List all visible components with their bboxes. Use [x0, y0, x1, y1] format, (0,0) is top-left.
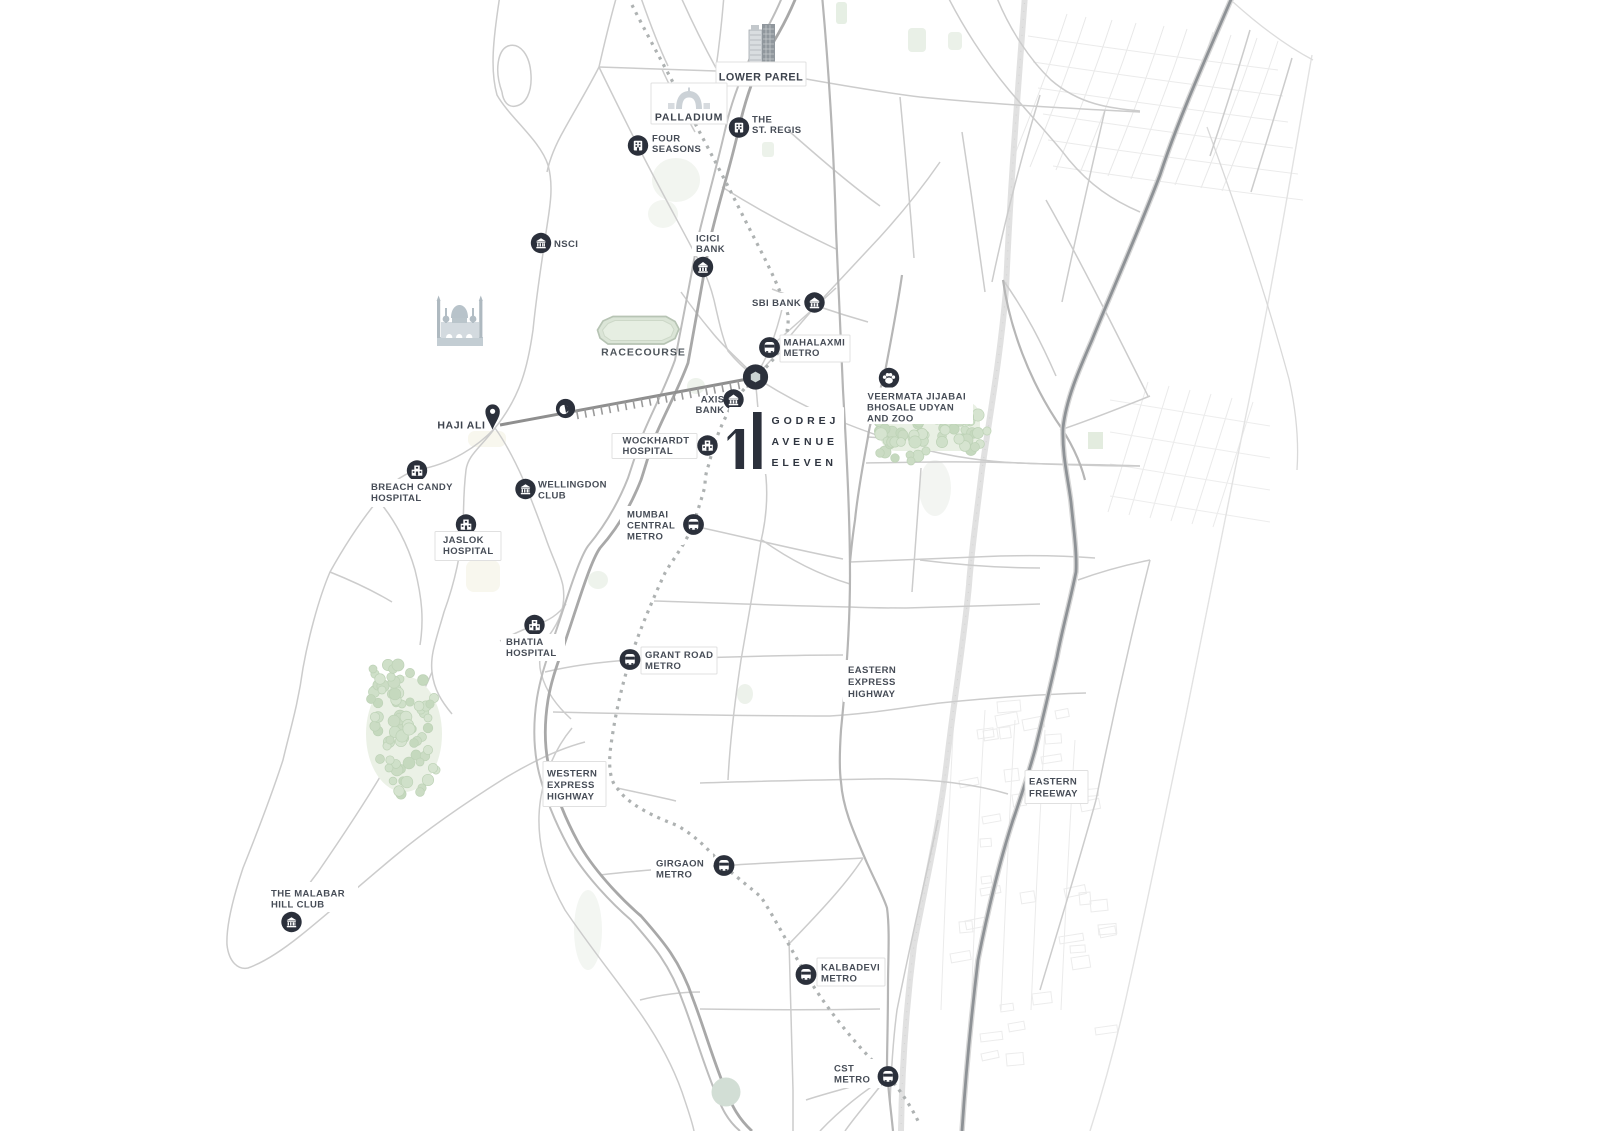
- svg-text:VEERMATA JIJABAI: VEERMATA JIJABAI: [868, 392, 967, 403]
- svg-text:SEASONS: SEASONS: [652, 144, 701, 155]
- svg-text:EXPRESS: EXPRESS: [848, 677, 896, 688]
- svg-text:CLUB: CLUB: [538, 491, 566, 502]
- svg-text:GODREJ: GODREJ: [772, 415, 840, 427]
- svg-text:METRO: METRO: [784, 348, 820, 359]
- svg-text:FOUR: FOUR: [652, 134, 681, 145]
- svg-text:HOSPITAL: HOSPITAL: [506, 648, 557, 659]
- svg-text:FREEWAY: FREEWAY: [1029, 789, 1078, 800]
- svg-text:EASTERN: EASTERN: [1029, 777, 1077, 788]
- svg-text:ST. REGIS: ST. REGIS: [752, 125, 802, 136]
- svg-text:GIRGAON: GIRGAON: [656, 859, 704, 870]
- svg-text:GRANT ROAD: GRANT ROAD: [645, 650, 713, 661]
- svg-text:HILL CLUB: HILL CLUB: [271, 900, 325, 911]
- svg-text:AVENUE: AVENUE: [772, 436, 838, 448]
- svg-text:AND ZOO: AND ZOO: [867, 414, 914, 425]
- svg-text:HIGHWAY: HIGHWAY: [848, 689, 896, 700]
- svg-text:EXPRESS: EXPRESS: [547, 780, 595, 791]
- svg-text:WESTERN: WESTERN: [547, 769, 597, 780]
- svg-text:CST: CST: [834, 1064, 854, 1075]
- svg-text:THE MALABAR: THE MALABAR: [271, 889, 345, 900]
- svg-text:METRO: METRO: [834, 1075, 870, 1086]
- svg-text:METRO: METRO: [645, 661, 681, 672]
- svg-text:EASTERN: EASTERN: [848, 665, 896, 676]
- svg-text:WELLINGDON: WELLINGDON: [538, 480, 607, 491]
- svg-text:PALLADIUM: PALLADIUM: [655, 112, 723, 124]
- svg-text:JASLOK: JASLOK: [443, 535, 484, 546]
- svg-text:HOSPITAL: HOSPITAL: [371, 493, 422, 504]
- svg-text:KALBADEVI: KALBADEVI: [821, 963, 880, 974]
- svg-text:LOWER PAREL: LOWER PAREL: [719, 72, 803, 84]
- svg-text:METRO: METRO: [821, 974, 857, 985]
- svg-text:BREACH CANDY: BREACH CANDY: [371, 482, 453, 493]
- svg-text:ICICI: ICICI: [696, 234, 720, 245]
- svg-text:METRO: METRO: [656, 870, 692, 881]
- svg-text:SBI BANK: SBI BANK: [752, 298, 801, 309]
- svg-text:THE: THE: [752, 115, 772, 126]
- svg-text:HOSPITAL: HOSPITAL: [623, 446, 674, 457]
- svg-text:MUMBAI: MUMBAI: [627, 510, 668, 521]
- svg-text:BANK: BANK: [695, 405, 724, 416]
- svg-text:ELEVEN: ELEVEN: [772, 457, 837, 469]
- svg-text:RACECOURSE: RACECOURSE: [601, 347, 686, 359]
- svg-text:HIGHWAY: HIGHWAY: [547, 792, 595, 803]
- svg-text:HAJI ALI: HAJI ALI: [437, 420, 485, 432]
- svg-text:MAHALAXMI: MAHALAXMI: [784, 338, 846, 349]
- svg-text:HOSPITAL: HOSPITAL: [443, 546, 494, 557]
- svg-text:WOCKHARDT: WOCKHARDT: [623, 436, 690, 447]
- svg-text:BHOSALE UDYAN: BHOSALE UDYAN: [867, 403, 954, 414]
- svg-text:CENTRAL: CENTRAL: [627, 521, 675, 532]
- svg-text:METRO: METRO: [627, 532, 663, 543]
- svg-text:BANK: BANK: [696, 244, 725, 255]
- svg-text:BHATIA: BHATIA: [506, 637, 544, 648]
- svg-text:AXIS: AXIS: [701, 395, 725, 406]
- svg-text:NSCI: NSCI: [554, 239, 578, 250]
